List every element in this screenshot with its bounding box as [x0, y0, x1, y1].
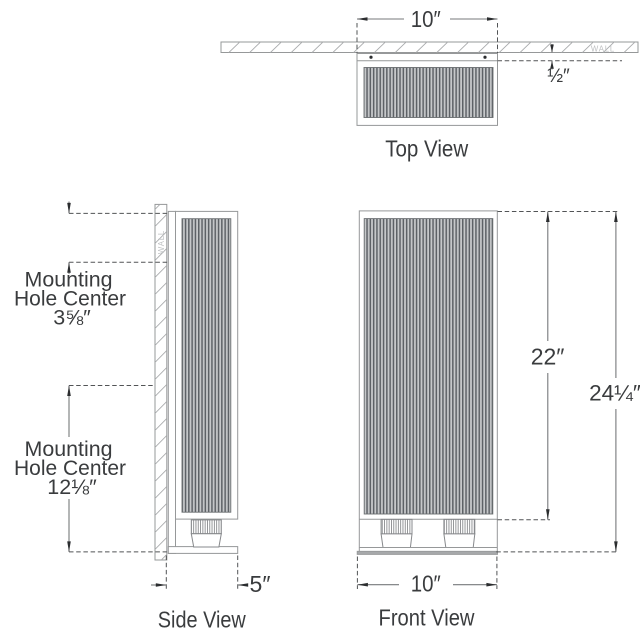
svg-text:Top View: Top View	[385, 136, 468, 162]
svg-text:10″: 10″	[411, 571, 441, 597]
svg-text:22″: 22″	[531, 344, 565, 370]
svg-text:Side View: Side View	[158, 607, 246, 633]
svg-text:½″: ½″	[547, 66, 570, 87]
svg-text:5″: 5″	[250, 571, 271, 597]
svg-text:24¼″: 24¼″	[589, 381, 640, 406]
svg-text:12⅛″: 12⅛″	[47, 475, 97, 499]
svg-text:WALL: WALL	[591, 44, 615, 53]
svg-text:10″: 10″	[411, 6, 441, 32]
svg-text:WALL: WALL	[157, 230, 166, 254]
svg-text:Front View: Front View	[379, 605, 475, 631]
svg-text:3⅝″: 3⅝″	[53, 306, 91, 330]
